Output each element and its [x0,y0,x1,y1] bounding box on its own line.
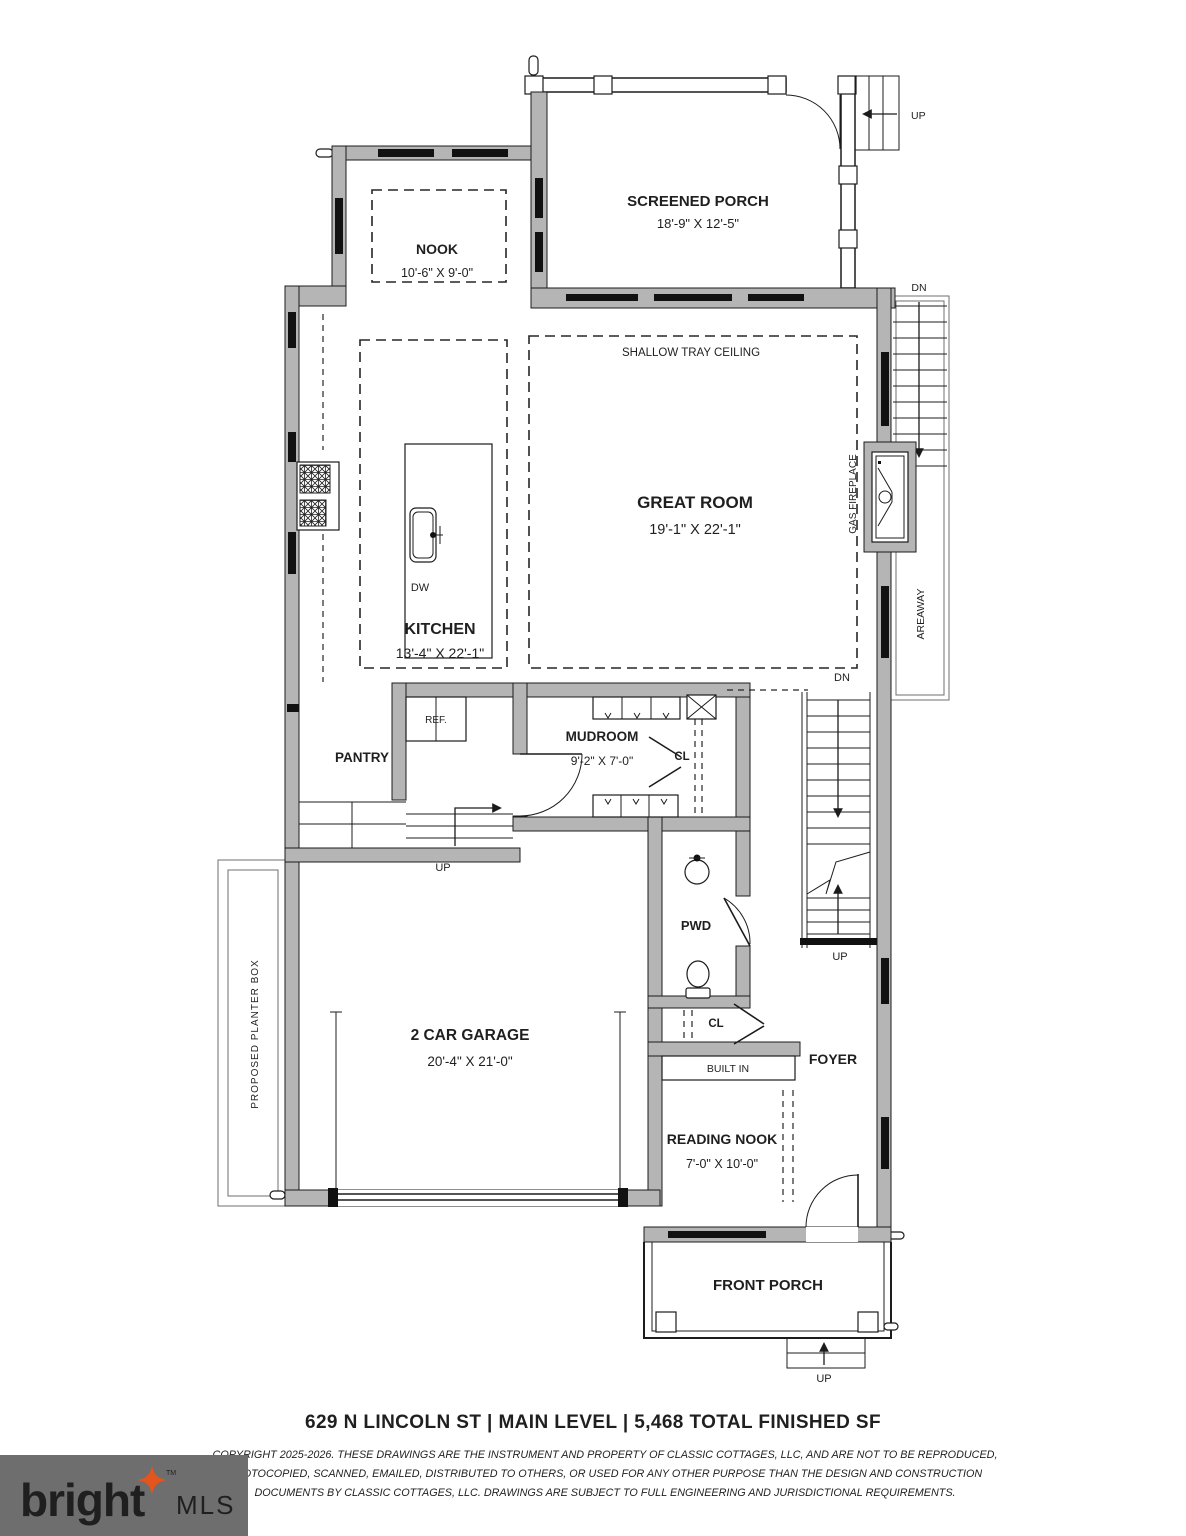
nook-label: NOOK [416,241,458,257]
bright-mls-logo: bright TM MLS [0,1455,248,1536]
front-steps-up-label: UP [816,1373,831,1385]
dishwasher-label: DW [411,582,430,594]
front-steps [787,1338,865,1368]
pantry-label: PANTRY [335,750,389,765]
powder-room-door [724,898,750,946]
foyer-label: FOYER [809,1051,857,1067]
front-door [806,1174,858,1242]
floor-plan-drawing: SCREENED PORCH 18'-9" X 12'-5" NOOK 10'-… [0,0,1186,1536]
plan-title: 629 N LINCOLN ST | MAIN LEVEL | 5,468 TO… [305,1412,881,1433]
garage-dims: 20'-4" X 21'-0" [427,1054,512,1069]
planter-box-label: PROPOSED PLANTER BOX [250,959,261,1108]
copyright-line3: DOCUMENTS BY CLASSIC COTTAGES, LLC. DRAW… [254,1487,955,1499]
screened-porch-dims: 18'-9" X 12'-5" [657,216,740,231]
main-stairs [800,692,877,948]
logo-brand-text: bright [20,1474,145,1526]
areaway-label: AREAWAY [915,589,927,640]
areaway-down-label: DN [911,282,926,294]
great-room-label: GREAT ROOM [637,493,753,512]
kitchen-dims: 13'-4" X 22'-1" [396,645,484,661]
mudroom-label: MUDROOM [566,729,639,744]
mudroom-dims: 9'-2" X 7'-0" [571,754,633,768]
hall-steps [406,808,513,846]
hall-steps-up-label: UP [435,862,450,874]
mudroom-closet-label: CL [674,751,689,763]
toilet [687,961,709,987]
pantry-shelves [299,802,406,848]
logo-tm: TM [166,1470,176,1477]
copyright-line2: PHOTOCOPIED, SCANNED, EMAILED, DISTRIBUT… [228,1468,983,1480]
built-in-label: BUILT IN [707,1063,749,1075]
tray-ceiling-note: SHALLOW TRAY CEILING [622,347,760,359]
reading-nook-opening [783,1090,793,1202]
garage-label: 2 CAR GARAGE [411,1027,530,1044]
foyer-closet-label: CL [708,1018,723,1030]
refrigerator-label: REF. [425,715,447,726]
powder-room-label: PWD [681,918,711,933]
foyer-closet-rod [684,1010,692,1040]
screened-porch-walls [525,76,857,288]
nook-dims: 10'-6" X 9'-0" [401,266,473,280]
gas-fireplace-label: GAS FIREPLACE [848,454,859,534]
porch-steps-up-label: UP [911,110,926,122]
porch-steps [855,76,899,150]
range-cooktop [297,462,339,530]
stairs-down-label: DN [834,672,850,684]
reading-nook-label: READING NOOK [667,1131,777,1147]
walls [285,92,916,1242]
gas-fireplace [872,452,908,542]
logo-suffix-text: MLS [176,1490,235,1520]
porch-door [786,95,840,149]
copyright-line1: COPYRIGHT 2025-2026. THESE DRAWINGS ARE … [213,1449,998,1461]
porch-post [656,1312,676,1332]
kitchen-label: KITCHEN [404,621,475,638]
front-porch-label: FRONT PORCH [713,1277,823,1294]
mudroom-closet-rod [695,719,702,815]
reading-nook-dims: 7'-0" X 10'-0" [686,1157,758,1171]
stairs-up-label: UP [832,951,847,963]
floor-plan-page: SCREENED PORCH 18'-9" X 12'-5" NOOK 10'-… [0,0,1186,1536]
screened-porch-label: SCREENED PORCH [627,193,769,210]
foyer-closet-door [734,1004,764,1044]
porch-post [858,1312,878,1332]
great-room-dims: 19'-1" X 22'-1" [649,522,741,538]
